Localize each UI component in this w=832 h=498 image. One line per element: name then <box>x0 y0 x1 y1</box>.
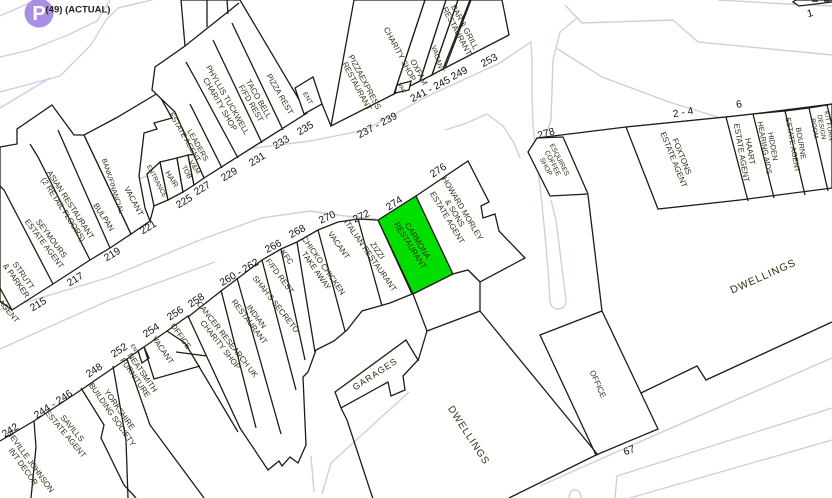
svg-text:P: P <box>32 3 45 25</box>
svg-text:(49) (ACTUAL): (49) (ACTUAL) <box>46 4 111 15</box>
